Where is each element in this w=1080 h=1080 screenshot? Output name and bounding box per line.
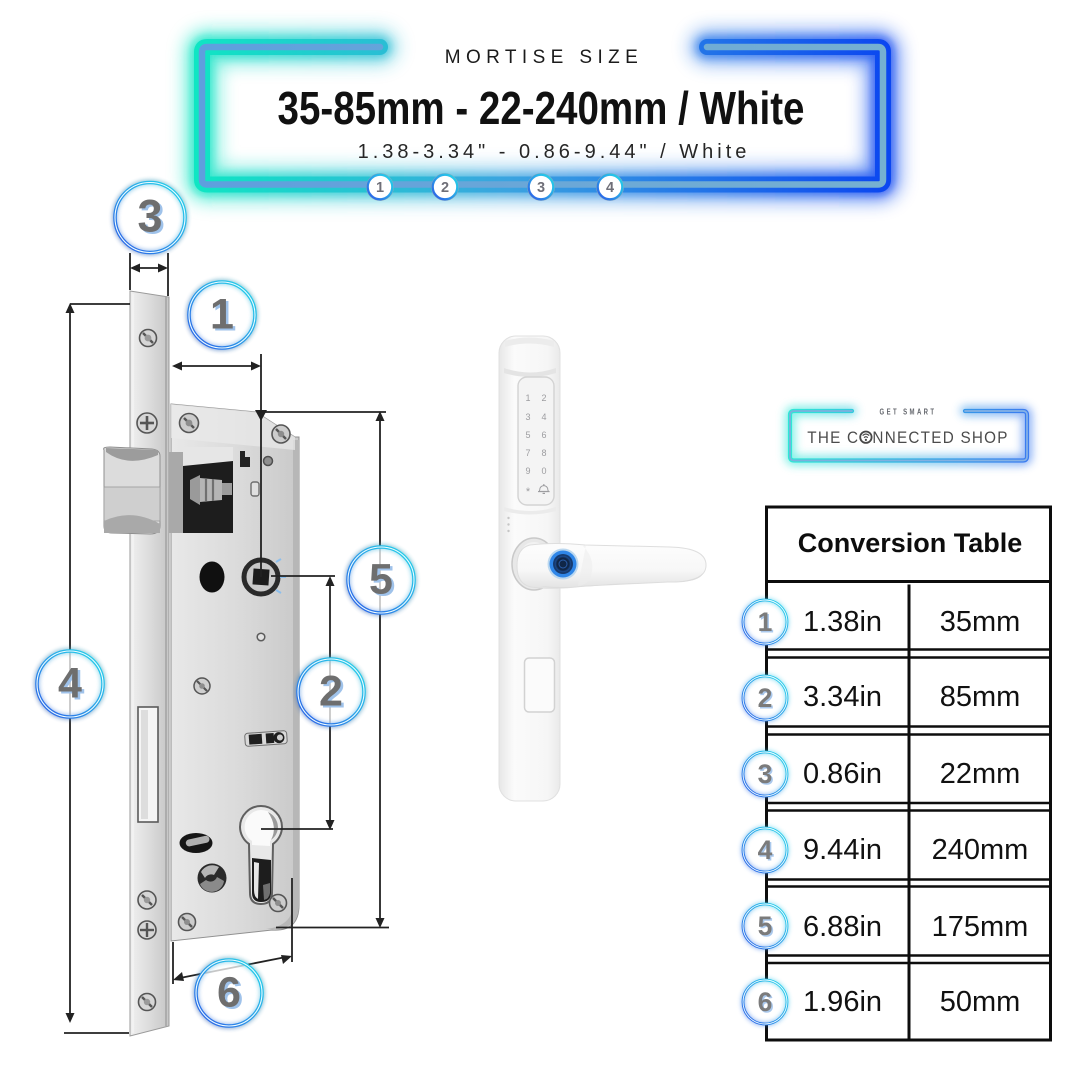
svg-text:6: 6: [217, 969, 241, 1017]
svg-text:3: 3: [758, 759, 773, 789]
svg-text:4: 4: [606, 180, 614, 196]
svg-text:GET SMART: GET SMART: [880, 407, 937, 417]
svg-text:85mm: 85mm: [940, 681, 1021, 713]
svg-text:35-85mm - 22-240mm / White: 35-85mm - 22-240mm / White: [278, 82, 805, 134]
svg-text:THE CONNECTED SHOP: THE CONNECTED SHOP: [807, 428, 1009, 447]
svg-text:35mm: 35mm: [940, 606, 1021, 638]
svg-text:*: *: [526, 486, 531, 498]
svg-text:1: 1: [758, 607, 773, 637]
svg-text:1.38-3.34" - 0.86-9.44" / Whit: 1.38-3.34" - 0.86-9.44" / White: [358, 141, 751, 163]
svg-text:1: 1: [210, 291, 234, 339]
svg-text:2: 2: [441, 180, 449, 196]
svg-text:6: 6: [541, 430, 546, 440]
svg-text:4: 4: [758, 835, 773, 865]
svg-text:5: 5: [758, 911, 773, 941]
svg-text:2: 2: [319, 668, 343, 716]
svg-text:9.44in: 9.44in: [803, 834, 882, 866]
svg-text:3.34in: 3.34in: [803, 681, 882, 713]
svg-text:4: 4: [58, 660, 82, 708]
svg-text:1.38in: 1.38in: [803, 606, 882, 638]
svg-text:5: 5: [369, 556, 393, 604]
svg-text:50mm: 50mm: [940, 986, 1021, 1018]
svg-text:0.86in: 0.86in: [803, 758, 882, 790]
svg-text:6.88in: 6.88in: [803, 911, 882, 943]
svg-text:3: 3: [525, 412, 530, 422]
svg-text:175mm: 175mm: [932, 911, 1029, 943]
svg-text:1: 1: [525, 393, 530, 403]
svg-text:2: 2: [758, 683, 773, 713]
svg-text:8: 8: [541, 448, 546, 458]
svg-text:1.96in: 1.96in: [803, 986, 882, 1018]
svg-text:0: 0: [541, 466, 546, 476]
svg-text:3: 3: [537, 180, 545, 196]
svg-text:6: 6: [758, 987, 773, 1017]
svg-text:9: 9: [525, 466, 530, 476]
svg-text:7: 7: [525, 448, 530, 458]
svg-text:22mm: 22mm: [940, 758, 1021, 790]
svg-text:4: 4: [541, 412, 546, 422]
svg-text:Conversion Table: Conversion Table: [798, 528, 1023, 558]
svg-text:5: 5: [525, 430, 530, 440]
svg-text:240mm: 240mm: [932, 834, 1029, 866]
svg-text:MORTISE SIZE: MORTISE SIZE: [445, 47, 644, 68]
svg-text:2: 2: [541, 393, 546, 403]
svg-text:1: 1: [376, 180, 384, 196]
svg-text:3: 3: [137, 191, 162, 242]
